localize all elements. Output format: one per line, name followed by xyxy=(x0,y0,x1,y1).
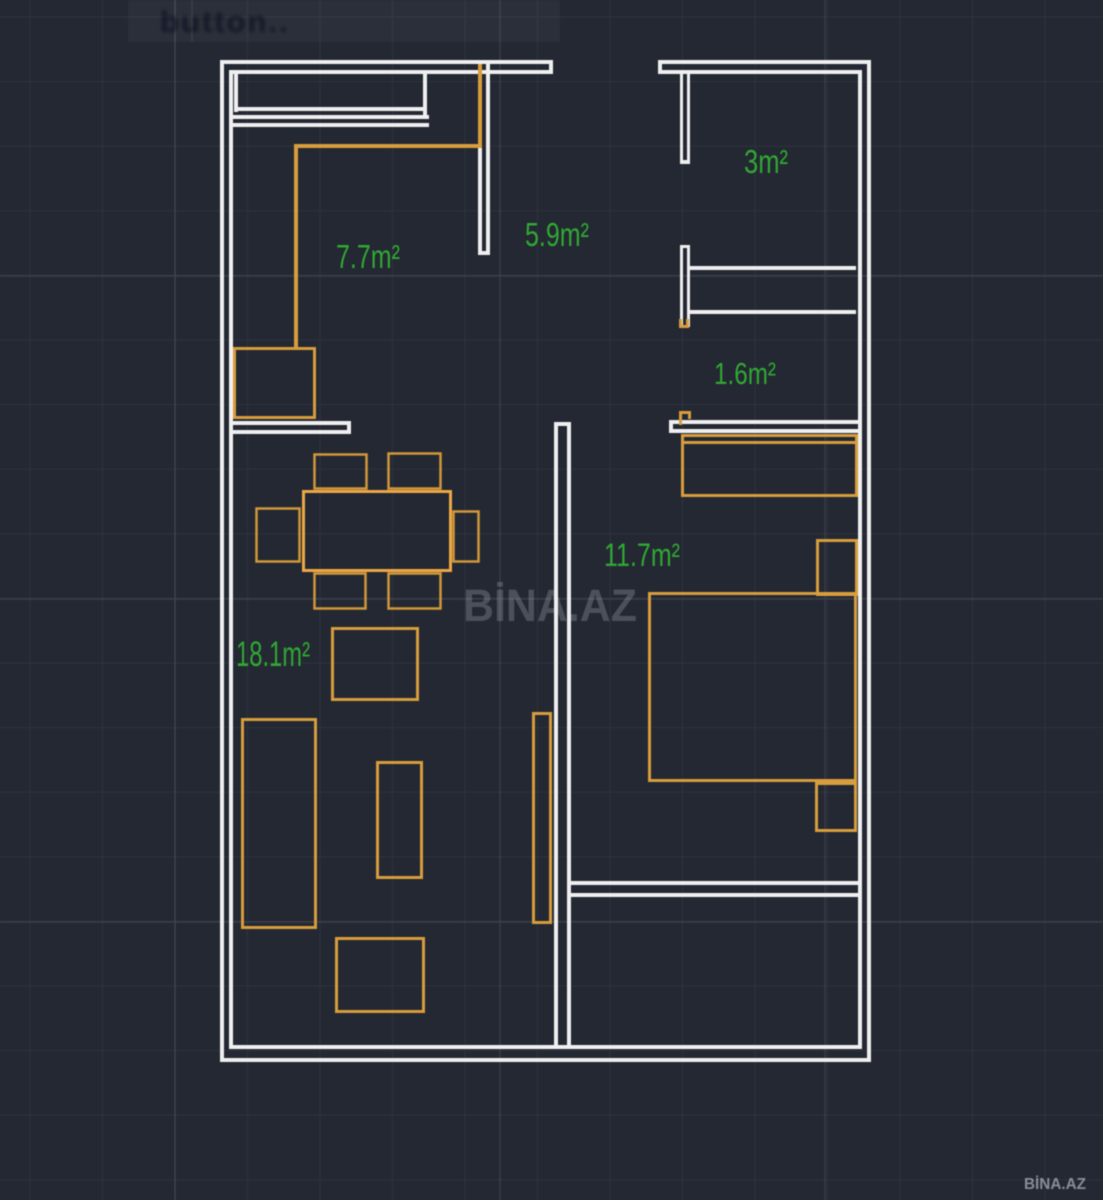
svg-text:5.9m²: 5.9m² xyxy=(525,216,589,253)
svg-text:BİNA.AZ: BİNA.AZ xyxy=(463,580,637,631)
svg-text:18.1m²: 18.1m² xyxy=(236,635,310,674)
svg-text:BİNA.AZ: BİNA.AZ xyxy=(1024,1175,1086,1193)
svg-text:button..: button.. xyxy=(160,4,290,39)
svg-text:7.7m²: 7.7m² xyxy=(336,238,400,275)
svg-text:3m²: 3m² xyxy=(744,143,788,180)
svg-text:11.7m²: 11.7m² xyxy=(604,537,680,573)
svg-text:1.6m²: 1.6m² xyxy=(714,356,776,391)
